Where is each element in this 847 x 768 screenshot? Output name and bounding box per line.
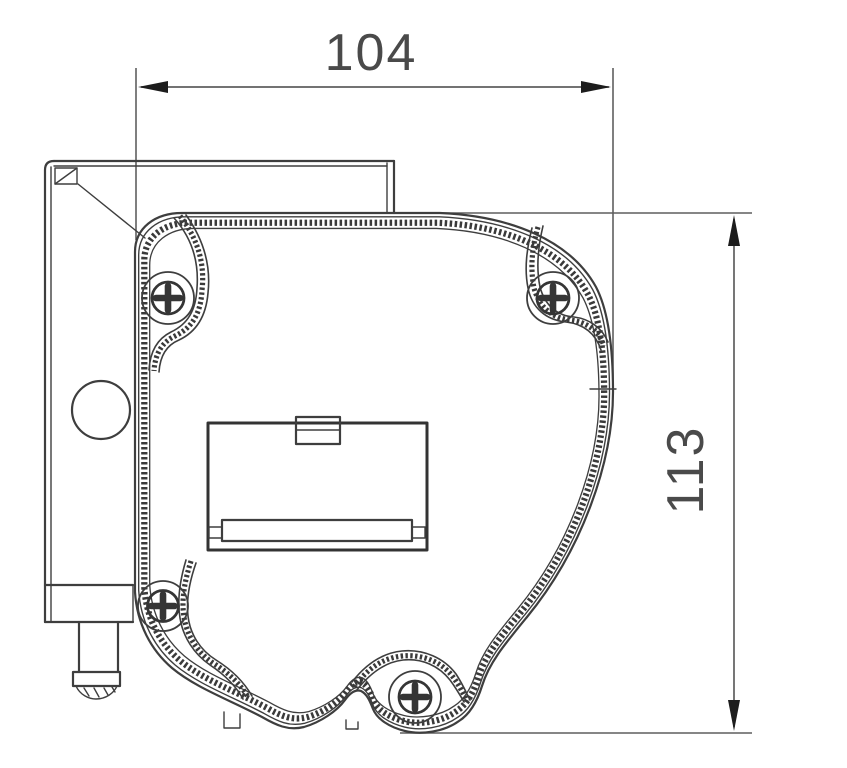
bracket-left-outer-edge — [45, 161, 54, 622]
bottom-tab-right — [346, 720, 358, 729]
access-panel — [208, 417, 427, 550]
panel-notch-right — [412, 527, 425, 538]
pin-flange — [73, 672, 120, 686]
groove-bottom-left — [179, 560, 252, 699]
pin-stud — [73, 622, 120, 699]
technical-drawing-page: 104 113 — [0, 0, 847, 768]
mounting-bracket — [45, 161, 394, 699]
panel-outline — [208, 423, 427, 550]
dimension-width-label: 104 — [325, 24, 418, 82]
bracket-hole-icon — [72, 381, 130, 439]
dimension-width: 104 — [136, 24, 613, 392]
arrow-right-icon — [581, 81, 611, 93]
arrow-left-icon — [138, 81, 168, 93]
body-hatched-channel — [144, 223, 604, 723]
pin-hatching — [84, 687, 115, 697]
dimension-height-label: 113 — [657, 426, 715, 515]
bottom-tab-left — [224, 712, 240, 728]
technical-drawing: 104 113 — [0, 0, 847, 768]
body-contour-offset-2 — [150, 228, 599, 717]
phillips-screw-icon-bottom-center — [389, 671, 441, 723]
corner-marker-icon — [55, 168, 145, 238]
dimension-height: 113 — [400, 213, 752, 733]
panel-notch-left — [209, 527, 222, 538]
panel-bottom-rail — [222, 520, 412, 541]
groove-top-left — [149, 215, 209, 372]
corner-marker-leader-line — [78, 184, 145, 238]
arrow-up-icon — [728, 215, 740, 246]
arrow-down-icon — [728, 700, 740, 731]
phillips-screw-icon-bottom-left — [138, 581, 188, 631]
